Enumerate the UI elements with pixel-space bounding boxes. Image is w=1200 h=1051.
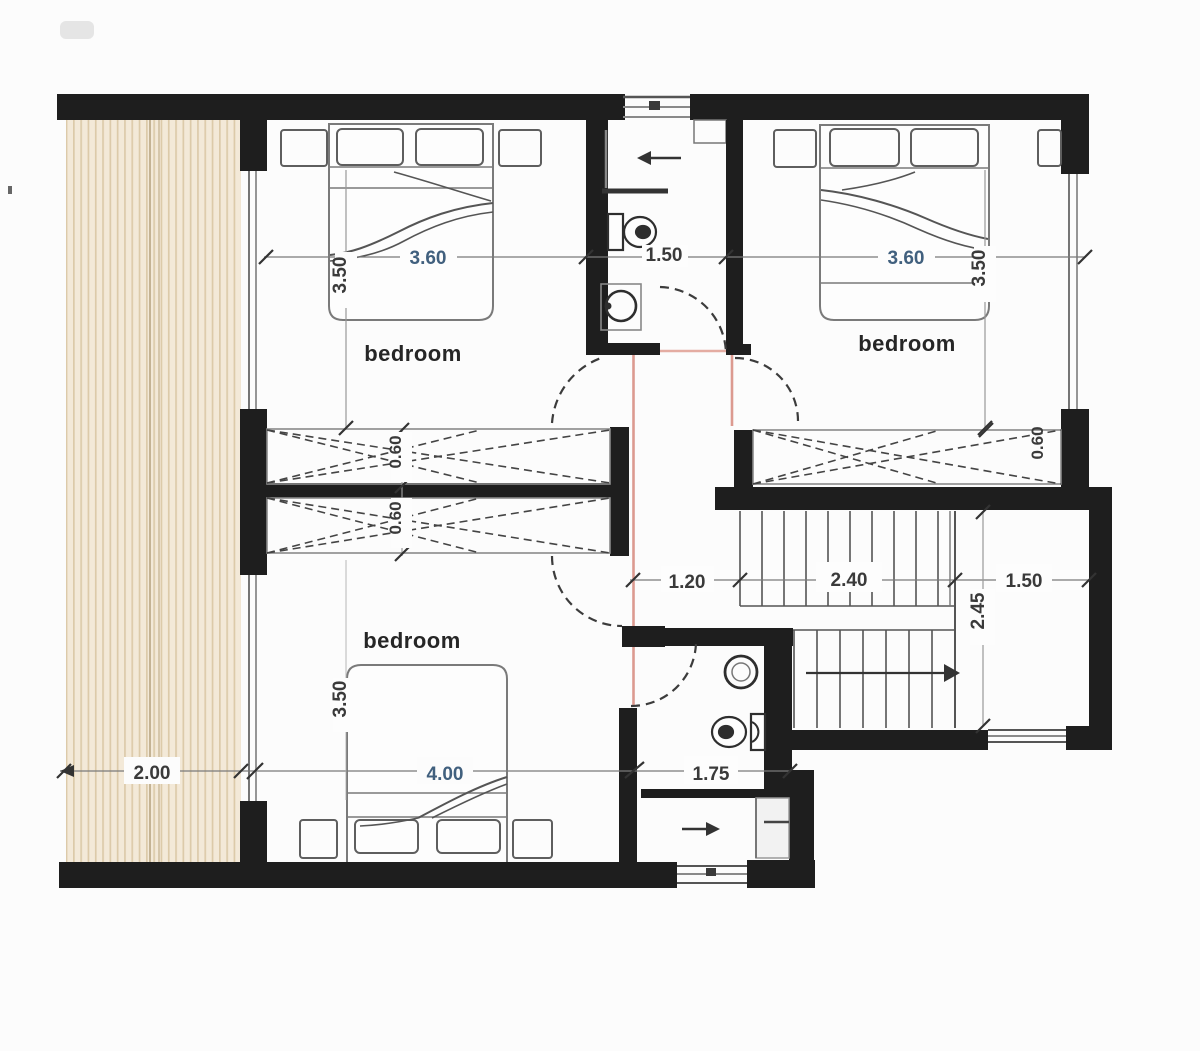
svg-text:4.00: 4.00 <box>427 764 464 785</box>
svg-text:1.50: 1.50 <box>1006 571 1043 592</box>
svg-text:1.50: 1.50 <box>646 245 683 266</box>
svg-text:1.20: 1.20 <box>669 572 706 593</box>
svg-text:0.60: 0.60 <box>1028 426 1047 459</box>
svg-text:3.50: 3.50 <box>330 681 351 718</box>
svg-text:0.60: 0.60 <box>386 435 405 468</box>
svg-text:3.50: 3.50 <box>330 257 351 294</box>
svg-text:0.60: 0.60 <box>386 501 405 534</box>
svg-text:bedroom: bedroom <box>364 341 462 366</box>
svg-text:3.60: 3.60 <box>410 248 447 269</box>
svg-text:1.75: 1.75 <box>693 764 730 785</box>
svg-text:bedroom: bedroom <box>858 331 956 356</box>
svg-text:3.50: 3.50 <box>969 250 990 287</box>
svg-text:2.00: 2.00 <box>134 763 171 784</box>
svg-text:2.45: 2.45 <box>968 592 989 629</box>
svg-text:bedroom: bedroom <box>363 628 461 653</box>
svg-text:2.40: 2.40 <box>831 570 868 591</box>
svg-text:3.60: 3.60 <box>888 248 925 269</box>
